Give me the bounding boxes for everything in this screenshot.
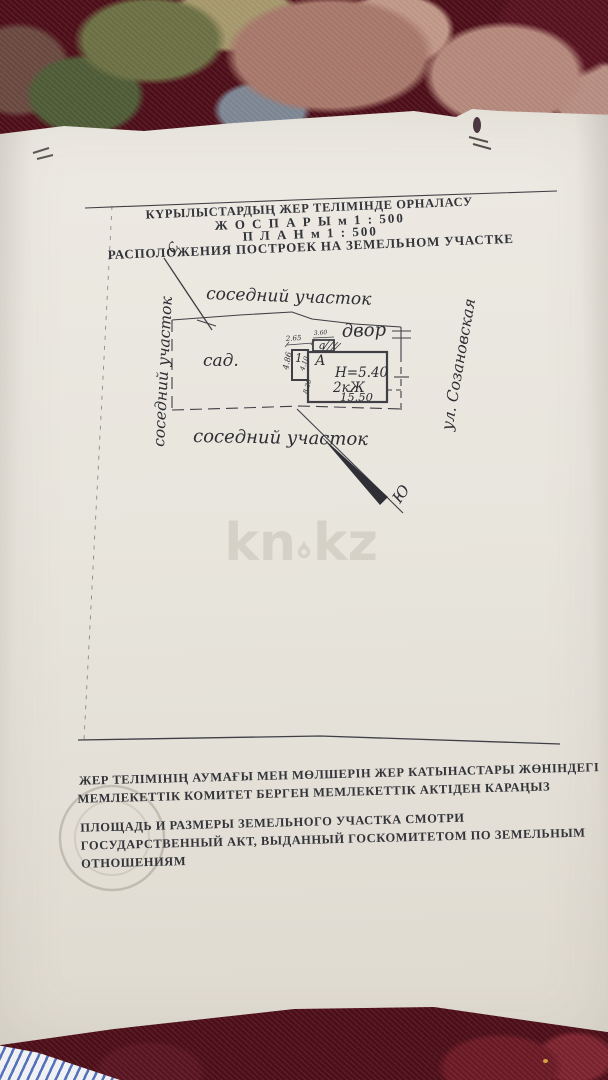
porch-letter-label: а xyxy=(319,339,326,352)
watermark: kn kz xyxy=(224,513,377,573)
watermark-kz: kz xyxy=(313,513,378,573)
building-length-label: 15.50 xyxy=(340,390,373,404)
frame-left-line xyxy=(84,206,112,740)
street-label: ул. Созановская xyxy=(438,297,479,433)
frame-bottom-line xyxy=(78,736,560,744)
notes-block: ЖЕР ТЕЛІМІНІҢ АУМАҒЫ МЕН МӨЛШЕРІН ЖЕР КА… xyxy=(77,760,602,871)
yard-label: двор xyxy=(341,319,386,342)
garden-label: сад. xyxy=(203,351,239,371)
neighbor-plot-label-bottom: соседний участок xyxy=(193,426,369,450)
compass-south-label: Ю xyxy=(388,481,414,507)
watermark-kn: kn xyxy=(224,513,296,573)
dim-porch-width: 3.60 xyxy=(314,329,328,337)
watermark-droplet-icon xyxy=(300,541,309,557)
note-russian-line3: ОТНОШЕНИЯМ xyxy=(81,854,186,871)
document-drawing: КҮРЫЛЫСТАРДЫҢ ЖЕР ТЕЛІМІНДЕ ОРНАЛАСУ Ж О… xyxy=(0,0,608,1080)
dim-annex-width: 2.65 xyxy=(285,334,303,343)
pen-mark-left xyxy=(33,148,53,159)
neighbor-plot-label-left: соседний участок xyxy=(150,295,176,447)
building-letter-label: А xyxy=(314,353,326,369)
photo-scene: КҮРЫЛЫСТАРДЫҢ ЖЕР ТЕЛІМІНДЕ ОРНАЛАСУ Ж О… xyxy=(0,0,608,1080)
building-height-label: Н=5.40 xyxy=(334,365,389,381)
south-arrow-icon xyxy=(297,409,403,513)
plan-title: КҮРЫЛЫСТАРДЫҢ ЖЕР ТЕЛІМІНДЕ ОРНАЛАСУ Ж О… xyxy=(106,193,514,262)
neighbor-plot-label-top: соседний участок xyxy=(206,284,373,310)
pen-mark-right xyxy=(469,117,491,149)
